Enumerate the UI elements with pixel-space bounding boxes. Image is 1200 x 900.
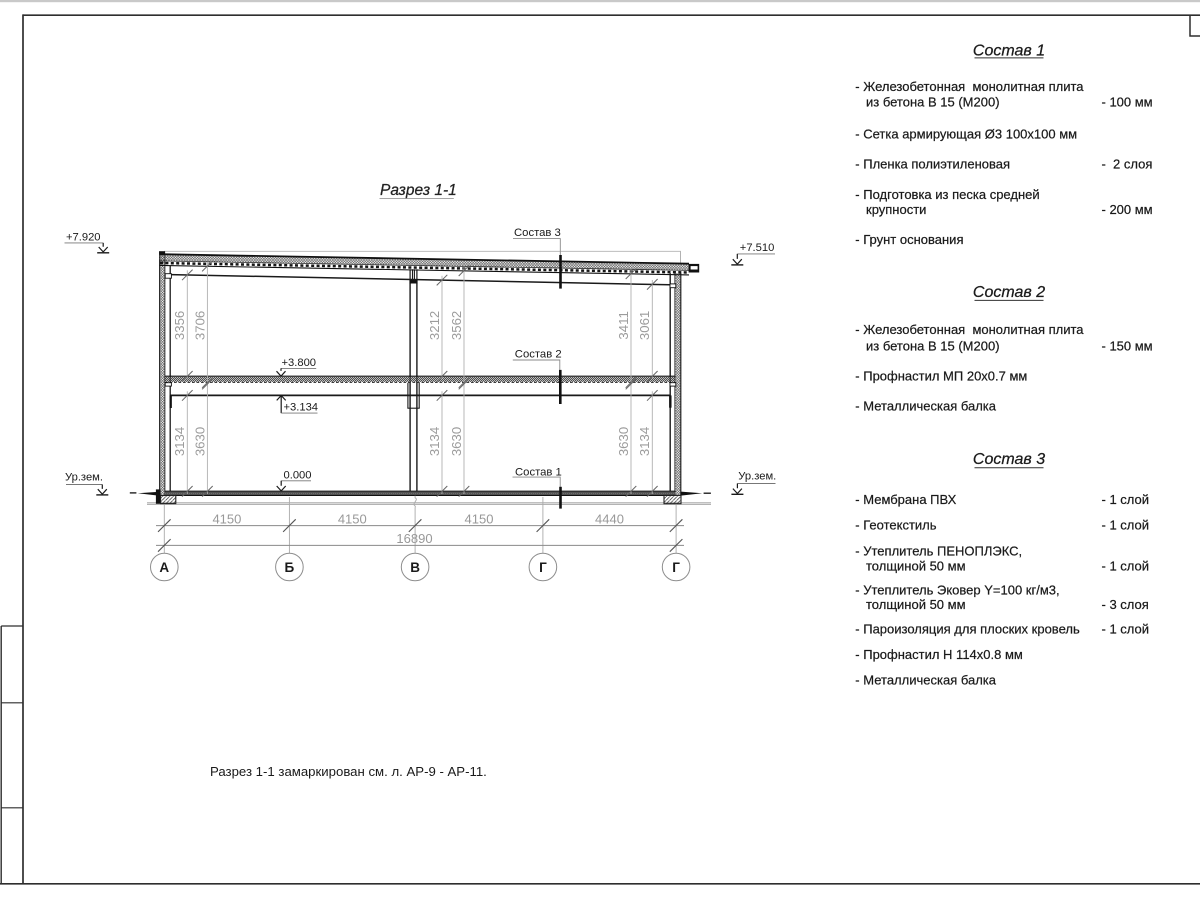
svg-text:- 2 слоя: - 2 слоя — [1102, 157, 1153, 172]
svg-text:- Металлическая балка: - Металлическая балка — [855, 673, 996, 688]
svg-text:+7.920: +7.920 — [66, 231, 101, 243]
svg-text:3061: 3061 — [637, 311, 652, 340]
svg-text:3356: 3356 — [172, 311, 187, 340]
svg-text:- Профнастил Н 114х0.8 мм: - Профнастил Н 114х0.8 мм — [855, 647, 1023, 662]
svg-text:- 200 мм: - 200 мм — [1102, 202, 1153, 217]
svg-text:Разрез 1-1 замаркирован см. л.: Разрез 1-1 замаркирован см. л. АР-9 - АР… — [210, 764, 487, 779]
svg-text:Г: Г — [539, 560, 547, 575]
svg-text:4150: 4150 — [338, 511, 367, 526]
svg-text:- Геотекстиль: - Геотекстиль — [855, 518, 936, 533]
svg-text:4440: 4440 — [595, 511, 624, 526]
svg-text:- Утеплитель Эковер Y=100 кг/м: - Утеплитель Эковер Y=100 кг/м3, — [855, 583, 1059, 598]
svg-text:- Профнастил МП 20х0.7 мм: - Профнастил МП 20х0.7 мм — [855, 369, 1027, 384]
svg-text:Состав 2: Состав 2 — [515, 348, 562, 360]
svg-text:из бетона В 15 (М200): из бетона В 15 (М200) — [866, 95, 1000, 110]
svg-text:3630: 3630 — [449, 427, 464, 456]
svg-text:Ур.зем.: Ур.зем. — [738, 471, 776, 483]
svg-text:- 100 мм: - 100 мм — [1102, 95, 1153, 110]
svg-text:3706: 3706 — [192, 311, 207, 340]
svg-text:- Утеплитель ПЕНОПЛЭКС,: - Утеплитель ПЕНОПЛЭКС, — [855, 544, 1022, 559]
svg-text:В: В — [410, 560, 420, 575]
svg-text:- 1 слой: - 1 слой — [1102, 518, 1150, 533]
svg-text:толщиной 50 мм: толщиной 50 мм — [866, 597, 966, 612]
svg-text:- 150 мм: - 150 мм — [1102, 339, 1153, 354]
svg-text:Состав 3: Состав 3 — [973, 451, 1045, 468]
svg-text:- Мембрана ПВХ: - Мембрана ПВХ — [855, 492, 956, 507]
svg-text:+7.510: +7.510 — [740, 242, 775, 254]
svg-text:- 1 слой: - 1 слой — [1102, 559, 1150, 574]
svg-text:- 3 слоя: - 3 слоя — [1102, 597, 1149, 612]
svg-text:4150: 4150 — [212, 511, 241, 526]
svg-text:- Железобетонная монолитная п: - Железобетонная монолитная плита — [855, 322, 1084, 337]
svg-text:- Подготовка из песка средней: - Подготовка из песка средней — [855, 187, 1039, 202]
svg-text:Состав 1: Состав 1 — [973, 43, 1045, 60]
svg-text:0.000: 0.000 — [284, 469, 312, 481]
svg-text:Состав 2: Состав 2 — [973, 284, 1045, 301]
svg-text:- 1 слой: - 1 слой — [1102, 622, 1150, 637]
svg-text:- 1 слой: - 1 слой — [1102, 492, 1150, 507]
svg-text:3411: 3411 — [616, 311, 631, 339]
svg-text:из бетона В 15 (М200): из бетона В 15 (М200) — [866, 339, 1000, 354]
svg-text:- Пароизоляция для плоских кро: - Пароизоляция для плоских кровель — [855, 622, 1080, 637]
svg-text:3630: 3630 — [616, 427, 631, 456]
svg-text:3134: 3134 — [637, 427, 652, 456]
svg-text:толщиной 50 мм: толщиной 50 мм — [866, 559, 966, 574]
svg-text:4150: 4150 — [465, 511, 494, 526]
svg-text:- Железобетонная монолитная п: - Железобетонная монолитная плита — [855, 79, 1084, 94]
svg-text:- Грунт основания: - Грунт основания — [855, 232, 963, 247]
svg-text:16890: 16890 — [396, 531, 432, 546]
svg-text:3212: 3212 — [427, 311, 442, 340]
svg-text:3134: 3134 — [427, 427, 442, 456]
svg-text:Г: Г — [672, 560, 680, 575]
svg-text:+3.800: +3.800 — [282, 357, 317, 369]
svg-text:Разрез 1-1: Разрез 1-1 — [380, 182, 457, 199]
svg-text:Состав 3: Состав 3 — [514, 227, 561, 239]
svg-text:3562: 3562 — [449, 311, 464, 340]
svg-text:А: А — [159, 560, 169, 575]
svg-text:Б: Б — [285, 560, 295, 575]
svg-text:- Сетка армирующая Ø3 100х100: - Сетка армирующая Ø3 100х100 мм — [855, 127, 1077, 142]
svg-text:Ур.зем.: Ур.зем. — [65, 472, 103, 484]
svg-text:- Металлическая балка: - Металлическая балка — [855, 399, 996, 414]
svg-text:крупности: крупности — [866, 202, 926, 217]
svg-text:3134: 3134 — [172, 427, 187, 456]
svg-text:3630: 3630 — [192, 427, 207, 456]
svg-text:- Пленка полиэтиленовая: - Пленка полиэтиленовая — [855, 157, 1010, 172]
svg-text:+3.134: +3.134 — [284, 402, 319, 414]
